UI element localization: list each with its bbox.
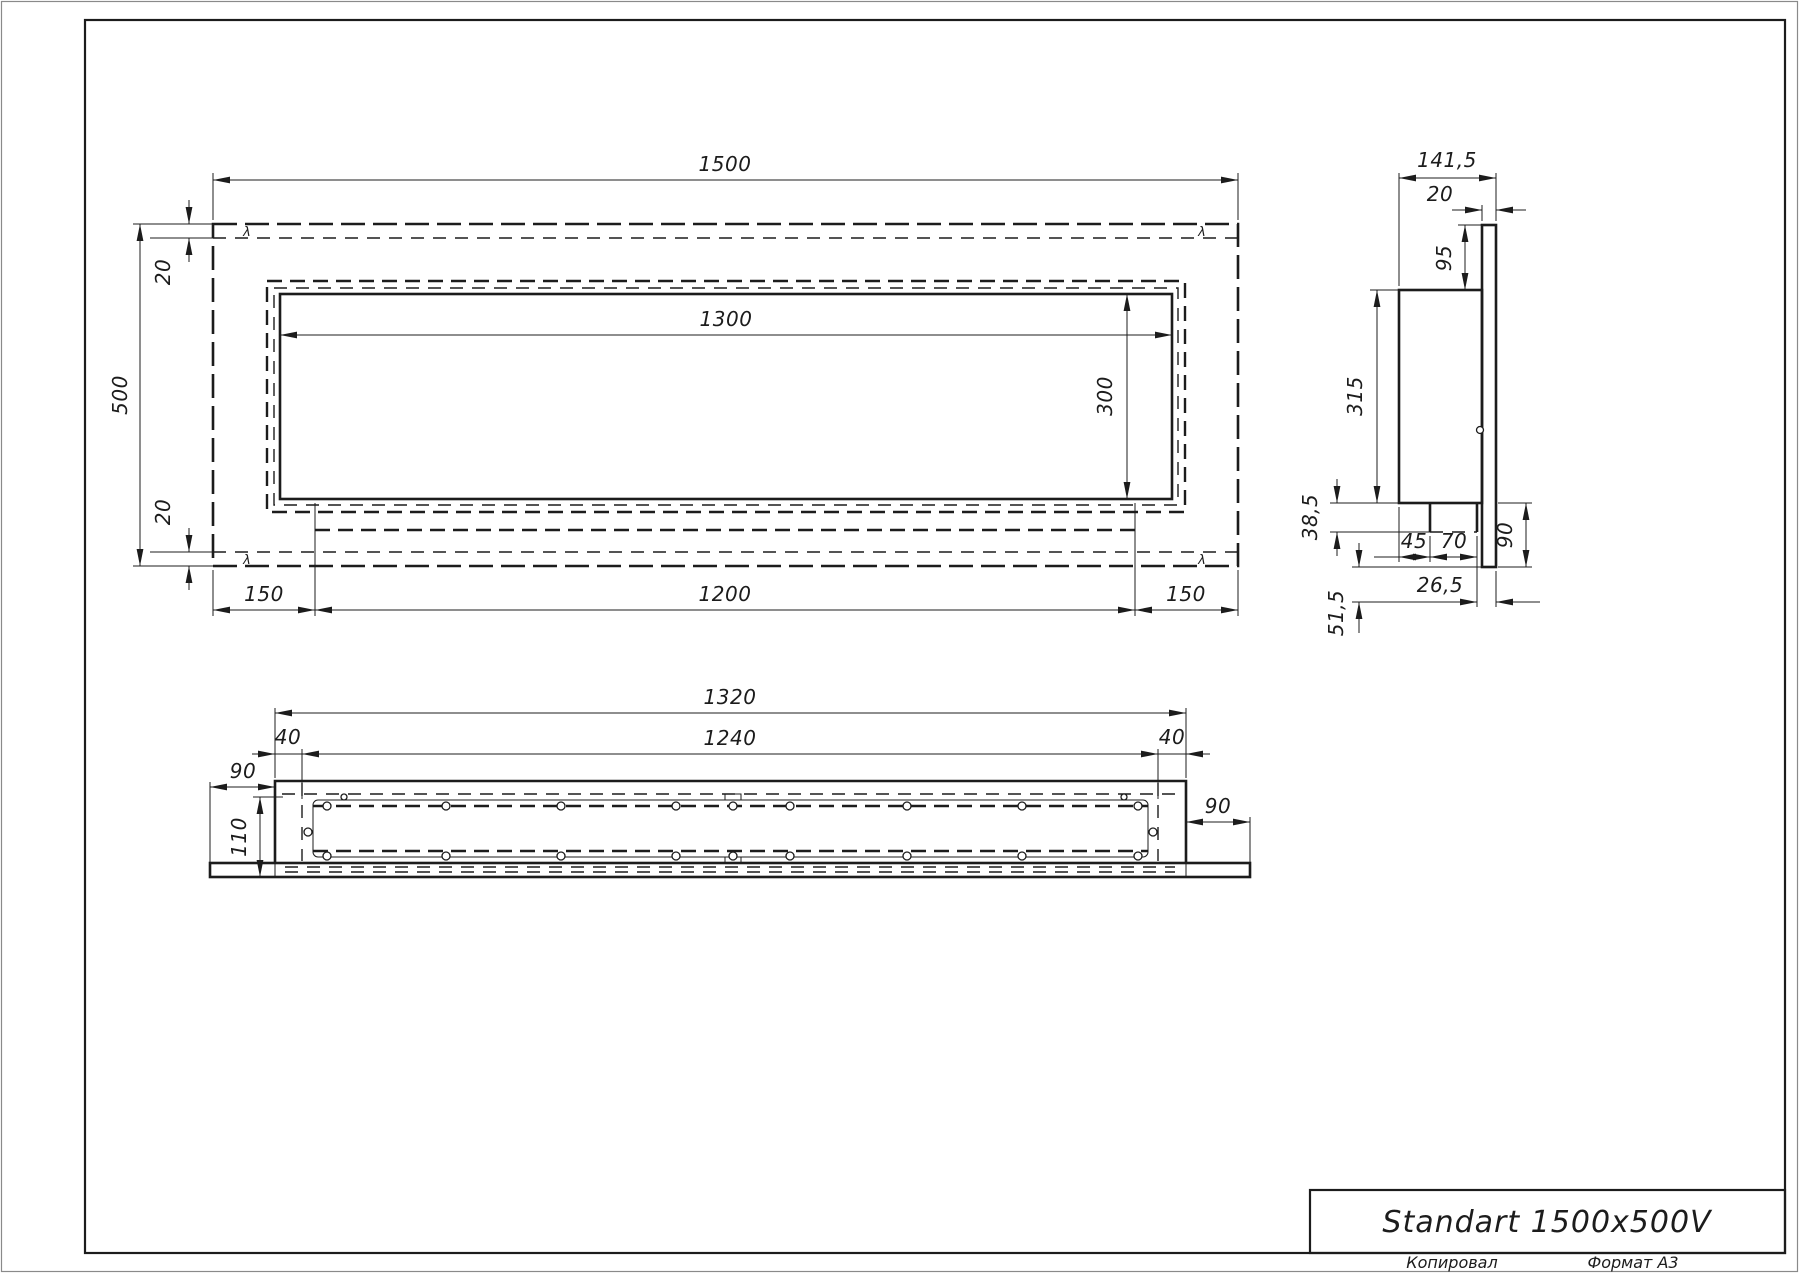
dim-side-flange-thickness: 20 [1427,182,1453,206]
bottom-flange-strip [210,863,1250,877]
dim-bottom-inner-width: 1240 [704,726,757,750]
dim-front-width: 1500 [699,152,752,176]
side-front-flange [1482,225,1496,567]
dim-line [253,797,283,877]
dim-side-top-inset: 95 [1432,245,1456,271]
dim-line [150,200,213,262]
dim-front-left-margin: 150 [244,582,284,606]
bottom-view: 1320 1240 40 40 90 90 110 [210,685,1250,877]
dim-side-tray-height: 38,5 [1298,494,1322,541]
dim-side-flange-overhang: 90 [1493,522,1517,548]
drawing-canvas: λ λ λ λ 1500 500 20 20 1300 300 150 [0,0,1800,1273]
weld-mark-icon: λ [1197,225,1206,240]
bottom-flange-hidden-rows [285,867,1175,872]
dim-line [1186,817,1250,864]
front-outer-contour [213,224,1238,566]
dim-line [1458,225,1484,290]
side-view: 141,5 20 95 315 38,5 45 70 90 26,5 [1298,148,1540,636]
dim-bottom-end-left: 40 [275,725,301,749]
dim-line [213,173,1238,220]
front-view: λ λ λ λ 1500 500 20 20 1300 300 150 [108,152,1238,616]
dim-front-inset-bottom: 20 [151,499,175,525]
dim-side-bottom-offset: 51,5 [1324,590,1348,637]
side-hole [1477,427,1484,434]
dim-bottom-flange-left: 90 [230,759,256,783]
title-block: Standart 1500x500V Копировал Формат А3 [1310,1190,1785,1272]
weld-mark-icon: λ [242,225,251,240]
dim-front-height: 500 [108,375,132,415]
dim-side-lip-offset: 26,5 [1417,573,1464,597]
dim-side-depth: 141,5 [1417,148,1477,172]
weld-mark-icon: λ [242,553,251,568]
drawing-sheet: λ λ λ λ 1500 500 20 20 1300 300 150 [0,0,1800,1273]
dim-front-inset-top: 20 [151,259,175,285]
drawing-title: Standart 1500x500V [1382,1205,1713,1240]
dim-side-tray-offset: 45 [1401,529,1427,553]
dim-side-tray-depth: 70 [1441,529,1467,553]
weld-mark-icon: λ [1197,553,1206,568]
dim-bottom-depth: 110 [227,817,251,857]
dim-bottom-flange-right: 90 [1205,794,1231,818]
format-label: Формат А3 [1587,1253,1678,1272]
bottom-body-through-flange [275,863,1186,877]
dim-front-opening-width: 1300 [700,307,753,331]
dim-line [150,528,213,590]
copied-label: Копировал [1406,1253,1497,1272]
dim-side-body-height: 315 [1343,376,1367,416]
dim-front-opening-height: 300 [1093,376,1117,416]
side-body [1399,290,1482,503]
dim-front-burner-width: 1200 [699,582,752,606]
side-tray-walls [1430,503,1477,532]
page-border [2,2,1798,1272]
dim-line [1452,205,1526,221]
dim-bottom-body-width: 1320 [704,685,757,709]
dim-front-right-margin: 150 [1166,582,1206,606]
dim-bottom-end-right: 40 [1159,725,1185,749]
dim-line [252,749,1210,799]
drawing-frame [85,20,1785,1253]
